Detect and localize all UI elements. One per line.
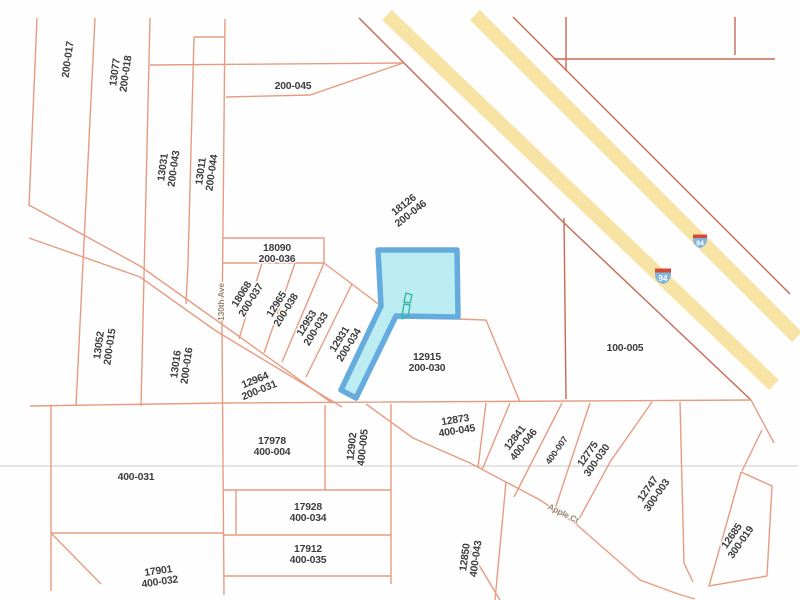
svg-text:17912: 17912 bbox=[294, 544, 322, 555]
svg-text:400-034: 400-034 bbox=[290, 513, 327, 524]
svg-text:200-036: 200-036 bbox=[259, 254, 296, 265]
svg-text:400-004: 400-004 bbox=[254, 447, 291, 458]
svg-text:94: 94 bbox=[696, 241, 704, 248]
svg-text:200-030: 200-030 bbox=[409, 363, 446, 374]
svg-text:94: 94 bbox=[659, 274, 668, 283]
svg-text:17928: 17928 bbox=[294, 502, 322, 513]
svg-text:100-005: 100-005 bbox=[607, 343, 644, 354]
svg-text:17978: 17978 bbox=[258, 436, 286, 447]
svg-text:400-031: 400-031 bbox=[118, 472, 155, 483]
svg-text:400-035: 400-035 bbox=[290, 555, 327, 566]
svg-text:200-045: 200-045 bbox=[275, 81, 312, 92]
svg-text:12915: 12915 bbox=[413, 352, 441, 363]
svg-text:18090: 18090 bbox=[263, 243, 291, 254]
svg-text:130th Ave: 130th Ave bbox=[216, 283, 226, 321]
